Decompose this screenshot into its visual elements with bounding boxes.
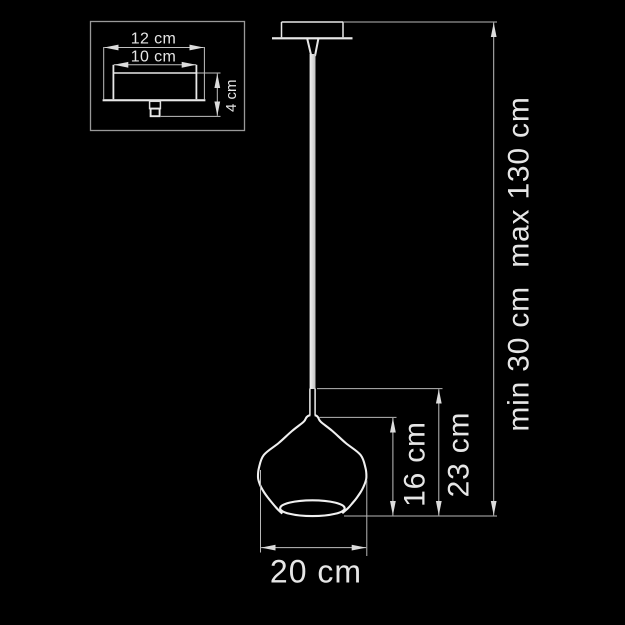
svg-text:23 cm: 23 cm (443, 412, 476, 498)
svg-text:12 cm: 12 cm (131, 31, 177, 48)
svg-text:16 cm: 16 cm (399, 421, 432, 507)
svg-text:4 cm: 4 cm (223, 80, 240, 113)
svg-text:20 cm: 20 cm (270, 554, 362, 590)
svg-text:min 30 cm max 130 cm: min 30 cm max 130 cm (503, 96, 536, 431)
svg-text:10 cm: 10 cm (131, 49, 177, 66)
